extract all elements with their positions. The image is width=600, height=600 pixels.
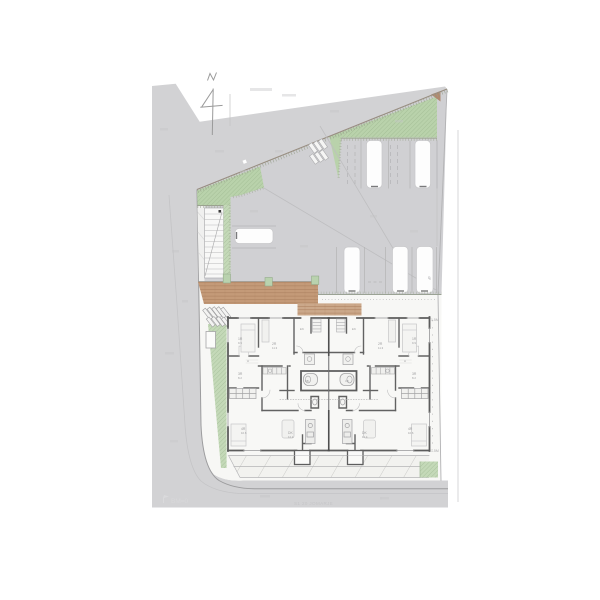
svg-text:9.9: 9.9 <box>238 341 242 345</box>
svg-text:H: H <box>404 359 406 363</box>
svg-text:8.2: 8.2 <box>412 376 416 380</box>
svg-text:9.9: 9.9 <box>412 341 416 345</box>
svg-text:11.3: 11.3 <box>272 346 278 350</box>
svg-text:11.3: 11.3 <box>378 346 384 350</box>
svg-text:10.6: 10.6 <box>408 431 414 435</box>
svg-text:UB: UB <box>305 379 309 383</box>
svg-text:10.6: 10.6 <box>241 431 247 435</box>
svg-text:1.5M: 1.5M <box>431 449 439 453</box>
svg-text:8.2: 8.2 <box>238 376 242 380</box>
svg-text:1.5M: 1.5M <box>431 318 439 322</box>
svg-text:BM=0: BM=0 <box>171 498 189 505</box>
svg-text:12.4: 12.4 <box>362 435 368 439</box>
svg-text:4F: 4F <box>427 276 431 280</box>
svg-text:S1 20 JOMARJE: S1 20 JOMARJE <box>294 501 333 506</box>
svg-text:EN: EN <box>300 327 304 331</box>
svg-text:12.4: 12.4 <box>288 435 294 439</box>
svg-text:H: H <box>247 359 249 363</box>
svg-text:UB: UB <box>345 379 349 383</box>
svg-text:EN: EN <box>352 327 356 331</box>
